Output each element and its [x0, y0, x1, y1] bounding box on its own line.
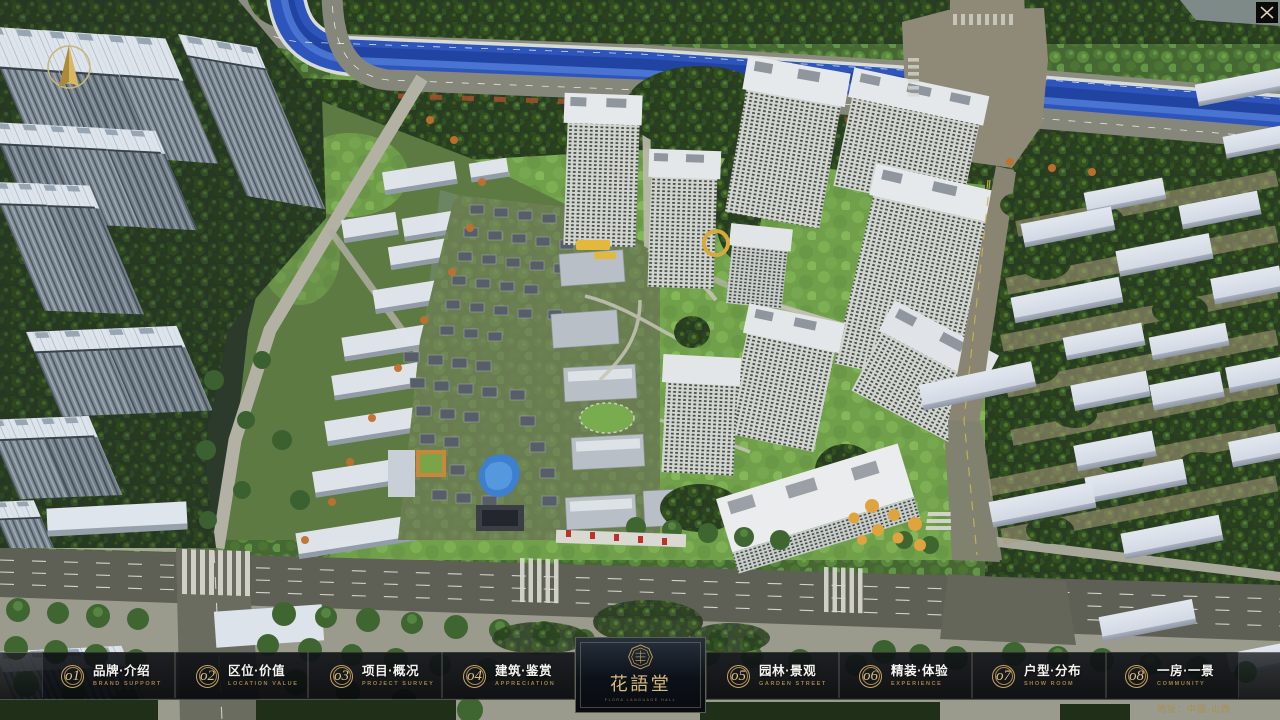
- svg-text:花語堂: 花語堂: [610, 674, 672, 694]
- svg-text:FLORA LANGUAGE HALL: FLORA LANGUAGE HALL: [605, 698, 676, 702]
